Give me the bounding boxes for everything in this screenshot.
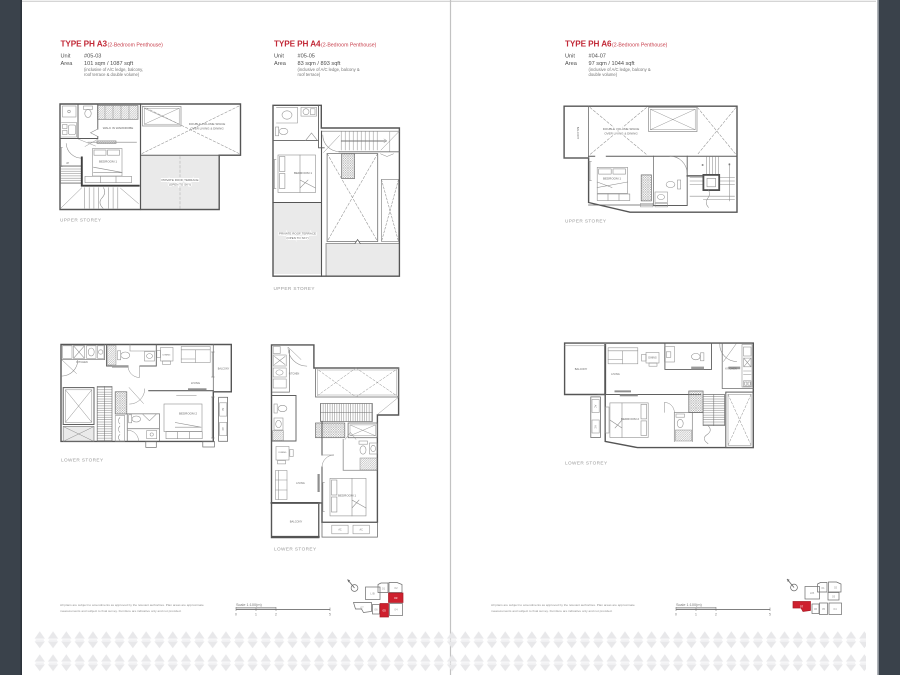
svg-text:AC: AC xyxy=(594,425,597,429)
svg-text:BEDROOM 1: BEDROOM 1 xyxy=(338,494,356,498)
svg-text:0: 0 xyxy=(235,613,237,617)
svg-text:Unit: Unit xyxy=(565,54,575,60)
svg-text:(2-Bedroom Penthouse): (2-Bedroom Penthouse) xyxy=(612,42,668,48)
svg-text:measurements and subject to fi: measurements and subject to final survey… xyxy=(60,609,181,613)
svg-text:OVER LIVING & DINING: OVER LIVING & DINING xyxy=(190,127,224,131)
svg-text:Scale 1:100(m): Scale 1:100(m) xyxy=(236,603,262,607)
svg-text:BEDROOM 1: BEDROOM 1 xyxy=(294,171,312,175)
svg-text:AC: AC xyxy=(360,529,364,532)
svg-text:TYPE PH A3: TYPE PH A3 xyxy=(61,40,108,49)
svg-text:Area: Area xyxy=(61,61,74,67)
svg-text:(OPEN TO SKY): (OPEN TO SKY) xyxy=(286,236,308,240)
svg-text:LIB: LIB xyxy=(810,591,815,595)
svg-text:(inclusive of A/C ledge, balco: (inclusive of A/C ledge, balcony & xyxy=(298,67,360,72)
svg-text:BEDROOM 1: BEDROOM 1 xyxy=(99,160,117,164)
svg-text:01: 01 xyxy=(382,587,386,591)
svg-text:Area: Area xyxy=(565,61,578,67)
svg-text:04: 04 xyxy=(394,608,398,612)
svg-text:(inclusive of A/C ledge, balco: (inclusive of A/C ledge, balcony & xyxy=(589,67,651,72)
svg-text:06: 06 xyxy=(374,608,378,612)
svg-text:AC: AC xyxy=(221,408,224,412)
svg-text:TYPE PH A6: TYPE PH A6 xyxy=(565,40,612,49)
svg-text:LIB: LIB xyxy=(370,592,375,596)
svg-text:KITCHEN: KITCHEN xyxy=(289,373,300,376)
svg-text:BEDROOM 2: BEDROOM 2 xyxy=(179,412,197,416)
svg-text:DINING: DINING xyxy=(279,452,287,454)
svg-text:DINING: DINING xyxy=(648,357,657,360)
svg-text:double volume): double volume) xyxy=(589,72,618,77)
svg-text:2: 2 xyxy=(715,613,717,617)
svg-text:04: 04 xyxy=(833,607,837,611)
svg-text:UPPER STOREY: UPPER STOREY xyxy=(565,219,607,224)
svg-text:1: 1 xyxy=(695,613,697,617)
svg-text:07: 07 xyxy=(360,606,364,610)
svg-text:BEDROOM 1: BEDROOM 1 xyxy=(603,177,621,181)
svg-text:roof terrace): roof terrace) xyxy=(298,72,321,77)
svg-text:PRIVATE ROOF TERRACE: PRIVATE ROOF TERRACE xyxy=(279,232,316,236)
svg-text:AC: AC xyxy=(221,427,224,431)
svg-text:BEDROOM 2: BEDROOM 2 xyxy=(621,417,639,421)
svg-text:BALCONY: BALCONY xyxy=(218,368,230,371)
svg-text:05: 05 xyxy=(383,609,387,613)
svg-text:Unit: Unit xyxy=(61,54,71,60)
svg-text:All plans are subject to amend: All plans are subject to amendments as a… xyxy=(491,603,635,607)
svg-text:TYPE PH A4: TYPE PH A4 xyxy=(274,40,321,49)
svg-text:UP: UP xyxy=(66,163,70,165)
svg-text:AC: AC xyxy=(594,405,597,409)
svg-text:(2-Bedroom Penthouse): (2-Bedroom Penthouse) xyxy=(108,42,164,48)
svg-text:Unit: Unit xyxy=(274,54,284,60)
svg-text:Scale 1:100(m): Scale 1:100(m) xyxy=(676,603,702,607)
svg-text:05: 05 xyxy=(822,607,826,611)
svg-text:DINING: DINING xyxy=(163,355,171,357)
svg-text:07: 07 xyxy=(800,605,804,609)
svg-text:measurements and subject to fi: measurements and subject to final survey… xyxy=(491,609,612,613)
svg-text:LIVING: LIVING xyxy=(296,481,305,485)
svg-text:03: 03 xyxy=(394,596,398,600)
svg-text:OVER LIVING & DINING: OVER LIVING & DINING xyxy=(604,132,638,136)
svg-text:1: 1 xyxy=(255,613,257,617)
svg-text:BALCONY: BALCONY xyxy=(576,127,580,140)
svg-text:0: 0 xyxy=(675,613,677,617)
svg-text:2: 2 xyxy=(275,613,277,617)
svg-text:AC: AC xyxy=(338,529,342,532)
svg-text:BALCONY: BALCONY xyxy=(575,367,588,371)
svg-text:5: 5 xyxy=(769,613,771,617)
svg-text:UPPER STOREY: UPPER STOREY xyxy=(60,218,102,223)
svg-text:(2-Bedroom Penthouse): (2-Bedroom Penthouse) xyxy=(321,42,377,48)
svg-text:(OPEN TO SKY): (OPEN TO SKY) xyxy=(169,183,191,187)
svg-text:All plans are subject to amend: All plans are subject to amendments as a… xyxy=(60,603,204,607)
svg-text:Area: Area xyxy=(274,61,287,67)
svg-text:WALK IN WARDROBE: WALK IN WARDROBE xyxy=(103,126,134,130)
svg-text:DOUBLE VOLUME SPACE: DOUBLE VOLUME SPACE xyxy=(189,122,226,126)
svg-text:LOWER STOREY: LOWER STOREY xyxy=(61,458,104,463)
svg-text:01: 01 xyxy=(821,586,825,590)
svg-text:LOWER STOREY: LOWER STOREY xyxy=(565,461,608,466)
svg-text:#05-05: #05-05 xyxy=(298,54,315,60)
svg-text:5: 5 xyxy=(329,613,331,617)
svg-text:KITCHEN: KITCHEN xyxy=(725,367,737,371)
svg-text:03: 03 xyxy=(832,595,836,599)
svg-text:LIVING: LIVING xyxy=(191,381,200,385)
svg-text:06: 06 xyxy=(814,607,818,611)
svg-text:LIVING: LIVING xyxy=(611,372,620,376)
svg-text:DOUBLE VOLUME SPACE: DOUBLE VOLUME SPACE xyxy=(603,127,640,131)
svg-text:roof terrace & double volume): roof terrace & double volume) xyxy=(84,72,140,77)
svg-text:BALCONY: BALCONY xyxy=(290,520,303,524)
svg-text:#05-03: #05-03 xyxy=(84,54,101,60)
svg-text:02: 02 xyxy=(834,586,838,590)
svg-text:(inclusive of A/C ledge, balco: (inclusive of A/C ledge, balcony, xyxy=(84,67,143,72)
svg-text:#04-07: #04-07 xyxy=(589,54,606,60)
svg-text:02: 02 xyxy=(394,586,398,590)
svg-text:LOWER STOREY: LOWER STOREY xyxy=(274,547,317,552)
svg-text:PRIVATE ROOF TERRACE: PRIVATE ROOF TERRACE xyxy=(161,178,198,182)
svg-text:UPPER STOREY: UPPER STOREY xyxy=(274,286,316,291)
